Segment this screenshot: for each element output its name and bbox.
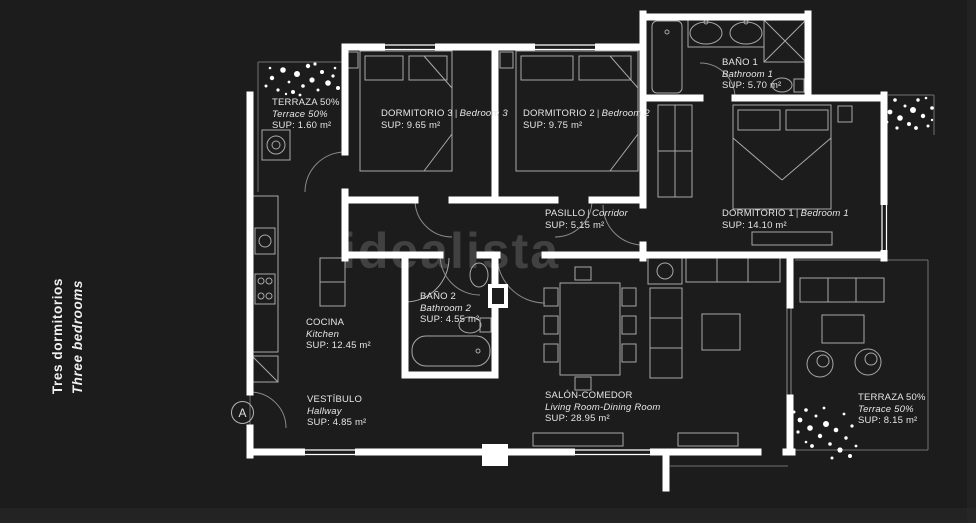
room-label-dormitorio-2: DORMITORIO 2|Bedroom 2 SUP: 9.75 m² [523,108,650,131]
room-label-bano-2: BAÑO 2 Bathroom 2 SUP: 4.55 m² [420,291,479,326]
floorplan-page: idealista [0,0,976,523]
right-shade-strip [967,0,976,523]
room-label-pasillo: PASILLO|Corridor SUP: 5.15 m² [545,208,628,231]
plan-title-en: Three bedrooms [70,280,85,394]
room-label-cocina: COCINA Kitchen SUP: 12.45 m² [306,317,371,352]
room-label-bano-1: BAÑO 1 Bathroom 1 SUP: 5.70 m² [722,57,781,92]
bottom-shade-strip [0,508,976,523]
room-label-terraza-top-left: TERRAZA 50% Terrace 50% SUP: 1.60 m² [272,97,340,132]
room-label-vestibulo: VESTÍBULO Hallway SUP: 4.85 m² [307,394,366,429]
room-label-dormitorio-3: DORMITORIO 3|Bedroom 3 SUP: 9.65 m² [381,108,508,131]
room-label-salon-comedor: SALÓN-COMEDOR Living Room-Dining Room SU… [545,390,660,425]
plan-title-es: Tres dormitorios [50,278,65,394]
room-labels-layer: TERRAZA 50% Terrace 50% SUP: 1.60 m² DOR… [0,0,976,523]
room-label-dormitorio-1: DORMITORIO 1|Bedroom 1 SUP: 14.10 m² [722,208,849,231]
entrance-marker: A [231,401,254,424]
plan-title-vertical: Tres dormitorios Three bedrooms [50,244,85,394]
room-label-terraza-bottom-right: TERRAZA 50% Terrace 50% SUP: 8.15 m² [858,392,926,427]
